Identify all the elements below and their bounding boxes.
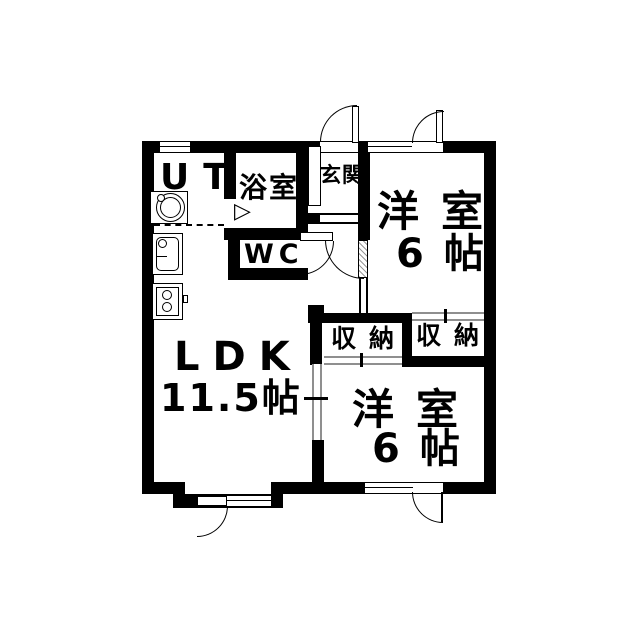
wall-closet-bottom-right [402,356,496,367]
bedroom-top-door-opening [412,142,443,152]
room-label-ldk: LDK [174,337,303,377]
entrance-step [320,213,360,224]
room-label-closet-left: 収納 [331,326,407,351]
wall-hall-thin [359,278,368,315]
room-size-ldk: 11.5帖 [160,379,302,417]
wall-closet-left [310,313,322,365]
wall-closet-top [308,313,412,323]
room-label-wc: WC [244,241,304,268]
stove-burner [162,290,172,300]
wall-entrance-bottom [296,213,320,224]
sliding-door-closet-right [412,312,484,321]
kitchen-faucet [158,239,167,248]
porch-door-swing-arc [197,506,228,537]
window-porch [227,496,271,506]
room-label-bath: 浴室 [239,174,299,202]
room-label-bedroom-bottom: 洋室 [352,389,480,431]
sliding-door-tick [304,397,328,400]
bath-door-triangle-icon: ▷ [234,201,251,223]
porch-door-leaf [197,496,227,506]
window-bedroom-top [368,142,412,152]
room-size-bedroom-top: 6帖 [396,234,504,274]
room-label-bedroom-top: 洋室 [377,191,505,233]
floorplan: ▷ UT 浴室 玄関 WC 洋室 6帖 収納 収納 LDK 11.5帖 洋室 6… [0,0,639,640]
room-label-closet-right: 収納 [416,323,492,348]
bedroom-top-hall-door-swing-arc [325,240,364,279]
entrance-door-opening [320,142,358,152]
stove-burner [162,302,172,312]
room-size-bedroom-bottom: 6帖 [372,429,480,469]
window-ut [160,142,190,152]
bedroom-bottom-door-swing-arc [412,492,443,523]
kitchen-sink-line [156,256,167,257]
window-bedroom-bottom [365,483,413,493]
room-label-entrance: 玄関 [320,165,364,186]
ut-kitchen-divider [154,224,224,226]
room-label-ut: UT [160,160,242,196]
stove-knob [183,295,188,303]
wall-ldk-bedroom [312,440,324,482]
sliding-door-closet-left [324,356,402,365]
sliding-door-tick [360,353,363,367]
bedroom-top-door-swing-arc [412,111,444,143]
wall-entrance-bedroom [358,141,370,240]
entrance-door-swing-arc [320,105,357,142]
sliding-door-ldk-bedroom [312,364,322,440]
